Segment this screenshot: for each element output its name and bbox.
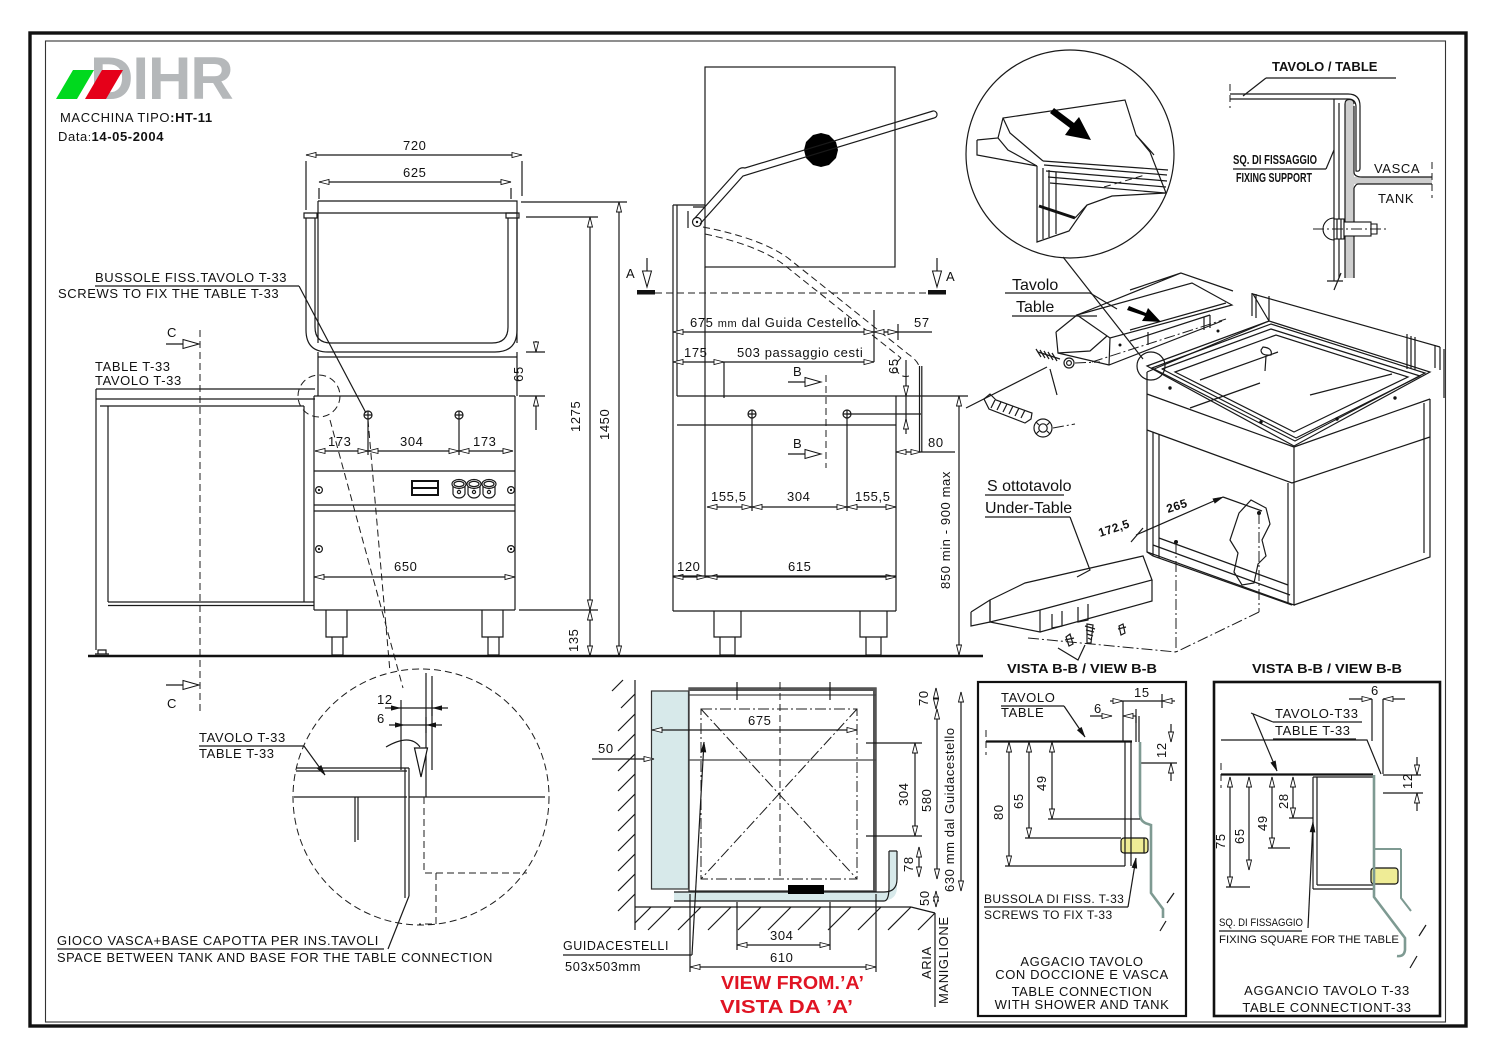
svg-text:75: 75 bbox=[1213, 833, 1228, 849]
svg-text:50: 50 bbox=[917, 890, 932, 906]
svg-text:WITH SHOWER AND TANK: WITH SHOWER AND TANK bbox=[995, 997, 1170, 1012]
svg-text:610: 610 bbox=[770, 950, 794, 965]
svg-text:120: 120 bbox=[677, 559, 701, 574]
svg-text:A: A bbox=[626, 266, 635, 281]
svg-text:675 mm dal Guida Cestello: 675 mm dal Guida Cestello bbox=[690, 315, 858, 330]
svg-text:SCREWS TO FIX THE TABLE T-33: SCREWS TO FIX THE TABLE T-33 bbox=[58, 286, 279, 301]
svg-text:TABLE T-33: TABLE T-33 bbox=[1275, 723, 1351, 738]
svg-text:675: 675 bbox=[748, 713, 772, 728]
svg-text:304: 304 bbox=[787, 489, 811, 504]
svg-text:TANK: TANK bbox=[1378, 191, 1414, 206]
svg-text:304: 304 bbox=[770, 928, 794, 943]
svg-text:155,5: 155,5 bbox=[711, 489, 747, 504]
svg-text:C: C bbox=[167, 325, 177, 340]
svg-text:VISTA DA ’A’: VISTA DA ’A’ bbox=[720, 997, 853, 1017]
svg-text:SQ. DI FISSAGGIO: SQ. DI FISSAGGIO bbox=[1233, 152, 1317, 167]
svg-text:Data:14-05-2004: Data:14-05-2004 bbox=[58, 129, 164, 144]
svg-text:TABLE T-33: TABLE T-33 bbox=[199, 746, 275, 761]
svg-text:6: 6 bbox=[377, 711, 385, 726]
svg-text:580: 580 bbox=[919, 789, 934, 813]
svg-text:Under-Table: Under-Table bbox=[985, 500, 1072, 517]
svg-text:304: 304 bbox=[896, 783, 911, 807]
svg-text:GUIDACESTELLI: GUIDACESTELLI bbox=[563, 938, 669, 953]
svg-text:12: 12 bbox=[1154, 742, 1169, 758]
svg-text:VISTA B-B / VIEW B-B: VISTA B-B / VIEW B-B bbox=[1252, 661, 1402, 676]
svg-text:FIXING SUPPORT: FIXING SUPPORT bbox=[1236, 170, 1312, 185]
svg-text:VASCA: VASCA bbox=[1374, 161, 1420, 176]
svg-text:57: 57 bbox=[914, 315, 930, 330]
svg-text:135: 135 bbox=[566, 629, 581, 653]
svg-text:TABLE: TABLE bbox=[1001, 705, 1044, 720]
svg-text:TAVOLO T-33: TAVOLO T-33 bbox=[95, 373, 182, 388]
svg-text:6: 6 bbox=[1094, 701, 1102, 716]
svg-text:VIEW FROM.’A’: VIEW FROM.’A’ bbox=[721, 973, 864, 993]
svg-text:630 mm dal Guidacestello: 630 mm dal Guidacestello bbox=[942, 727, 957, 892]
svg-text:SCREWS TO FIX T-33: SCREWS TO FIX T-33 bbox=[984, 908, 1113, 922]
svg-text:Tavolo: Tavolo bbox=[1012, 277, 1058, 294]
svg-text:503x503mm: 503x503mm bbox=[565, 959, 641, 974]
svg-text:503 passaggio cesti: 503 passaggio cesti bbox=[737, 345, 863, 360]
svg-text:MANIGLIONE: MANIGLIONE bbox=[936, 916, 951, 1004]
svg-text:BUSSOLE FISS.TAVOLO T-33: BUSSOLE FISS.TAVOLO T-33 bbox=[95, 270, 287, 285]
svg-text:TAVOLO: TAVOLO bbox=[1001, 690, 1055, 705]
svg-text:80: 80 bbox=[928, 435, 944, 450]
svg-text:70: 70 bbox=[916, 690, 931, 706]
svg-text:50: 50 bbox=[598, 741, 614, 756]
svg-text:BUSSOLA DI FISS. T-33: BUSSOLA DI FISS. T-33 bbox=[984, 892, 1124, 906]
svg-text:80: 80 bbox=[991, 804, 1006, 820]
svg-text:304: 304 bbox=[400, 434, 424, 449]
svg-text:6: 6 bbox=[1371, 683, 1379, 698]
svg-text:12: 12 bbox=[377, 692, 393, 707]
svg-text:ARIA: ARIA bbox=[919, 946, 934, 979]
svg-text:TABLE CONNECTIONT-33: TABLE CONNECTIONT-33 bbox=[1242, 1000, 1411, 1015]
svg-text:49: 49 bbox=[1255, 815, 1270, 831]
svg-text:15: 15 bbox=[1134, 685, 1150, 700]
svg-text:850 min - 900 max: 850 min - 900 max bbox=[938, 471, 953, 589]
svg-text:65: 65 bbox=[886, 358, 901, 374]
svg-text:155,5: 155,5 bbox=[855, 489, 891, 504]
svg-text:1275: 1275 bbox=[568, 401, 583, 432]
svg-text:B: B bbox=[793, 436, 802, 451]
svg-text:SQ. DI FISSAGGIO: SQ. DI FISSAGGIO bbox=[1219, 917, 1303, 929]
svg-text:MACCHINA TIPO:HT-11: MACCHINA TIPO:HT-11 bbox=[60, 110, 213, 125]
svg-text:65: 65 bbox=[1011, 793, 1026, 809]
svg-text:AGGANCIO TAVOLO T-33: AGGANCIO TAVOLO T-33 bbox=[1244, 983, 1410, 998]
svg-text:TAVOLO / TABLE: TAVOLO / TABLE bbox=[1272, 59, 1378, 74]
svg-text:Table: Table bbox=[1016, 299, 1054, 316]
svg-text:625: 625 bbox=[403, 165, 427, 180]
svg-text:173: 173 bbox=[473, 434, 497, 449]
svg-text:65: 65 bbox=[511, 366, 526, 382]
svg-text:SPACE BETWEEN TANK AND BASE FO: SPACE BETWEEN TANK AND BASE FOR THE TABL… bbox=[57, 950, 493, 965]
svg-text:FIXING SQUARE FOR THE TABLE: FIXING SQUARE FOR THE TABLE bbox=[1219, 934, 1399, 946]
svg-text:CON DOCCIONE E VASCA: CON DOCCIONE E VASCA bbox=[995, 967, 1169, 982]
svg-text:65: 65 bbox=[1232, 828, 1247, 844]
svg-text:TAVOLO T-33: TAVOLO T-33 bbox=[199, 730, 286, 745]
svg-text:720: 720 bbox=[403, 138, 427, 153]
svg-text:B: B bbox=[793, 364, 802, 379]
svg-text:GIOCO VASCA+BASE CAPOTTA PER I: GIOCO VASCA+BASE CAPOTTA PER INS.TAVOLI bbox=[57, 933, 379, 948]
svg-text:S ottotavolo: S ottotavolo bbox=[987, 478, 1072, 495]
svg-text:A: A bbox=[946, 269, 955, 284]
svg-text:C: C bbox=[167, 696, 177, 711]
svg-text:12: 12 bbox=[1400, 773, 1415, 789]
svg-text:615: 615 bbox=[788, 559, 812, 574]
svg-text:1450: 1450 bbox=[597, 409, 612, 440]
svg-text:VISTA B-B / VIEW B-B: VISTA B-B / VIEW B-B bbox=[1007, 661, 1157, 676]
svg-text:175: 175 bbox=[684, 345, 708, 360]
svg-text:650: 650 bbox=[394, 559, 418, 574]
svg-text:49: 49 bbox=[1034, 775, 1049, 791]
svg-text:TABLE T-33: TABLE T-33 bbox=[95, 359, 171, 374]
svg-text:78: 78 bbox=[901, 856, 916, 872]
svg-text:TAVOLO-T33: TAVOLO-T33 bbox=[1275, 706, 1359, 721]
svg-text:173: 173 bbox=[328, 434, 352, 449]
svg-text:28: 28 bbox=[1276, 793, 1291, 809]
